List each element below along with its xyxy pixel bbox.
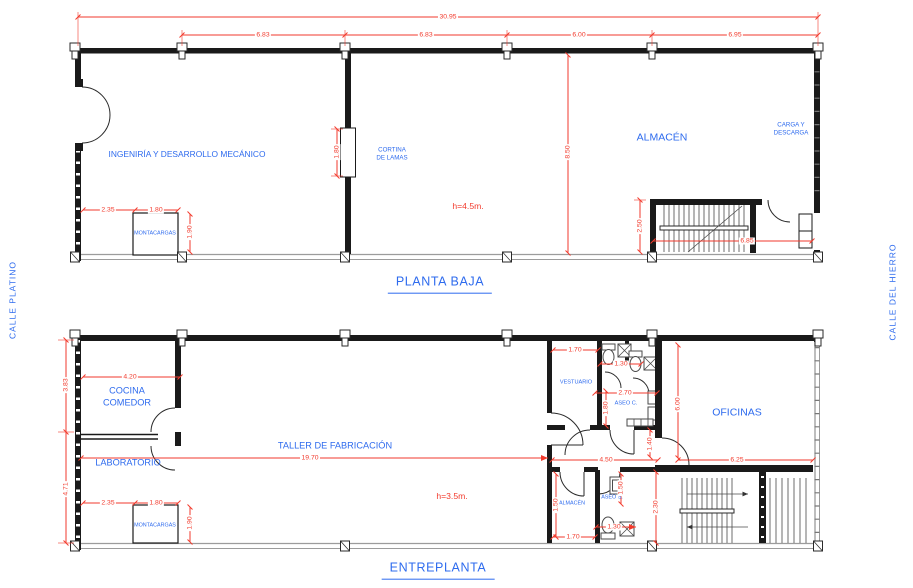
door-arc <box>82 87 110 115</box>
dimension-label: 6.95 <box>727 32 743 39</box>
street-label-calle-del-hierro: CALLE DEL HIERRO <box>888 244 899 341</box>
planta-baja-drawing <box>70 12 823 262</box>
dimension-label: 2.70 <box>617 390 633 397</box>
dimension-label: 1.80 <box>148 500 164 507</box>
dimension-label: 3.83 <box>63 377 70 393</box>
dimension-label: 1.80 <box>603 400 610 416</box>
dimension-label: 1.70 <box>567 347 583 354</box>
stairs-entreplanta <box>680 472 806 543</box>
dimension-label: 1.50 <box>618 480 625 496</box>
dimension-label: 2.35 <box>100 207 116 214</box>
dimension-label: 4.20 <box>122 374 138 381</box>
entreplanta-drawing <box>58 330 823 551</box>
floorplan-canvas: CALLE PLATINO CALLE DEL HIERRO PLANTA BA… <box>0 0 913 588</box>
dimension-label: 4.71 <box>63 481 70 497</box>
dimension-label: 19.70 <box>300 455 320 462</box>
room-label-ingenieria: INGENIRÍA Y DESARROLLO MECÁNICO <box>109 149 266 160</box>
room-label-cocina-comedor: COCINACOMEDOR <box>103 386 151 409</box>
stairs-planta-baja <box>650 199 762 253</box>
dimension-label: 6.83 <box>418 32 434 39</box>
room-label-taller: TALLER DE FABRICACIÓN <box>278 440 392 452</box>
door-leaf <box>799 231 812 248</box>
height-note-ep: h=3.5m. <box>436 491 467 501</box>
dimension-label: 2.30 <box>653 499 660 515</box>
dimension-label: 1.50 <box>553 497 560 513</box>
dimension-label: 1.90 <box>187 224 194 240</box>
room-label-almacen-pb: ALMACÉN <box>637 131 688 144</box>
dimension-label: 1.40 <box>647 436 654 452</box>
room-label-oficinas: OFICINAS <box>712 406 762 419</box>
dimension-label: 1.30 <box>613 361 629 368</box>
door-arc <box>768 200 790 222</box>
door-arc <box>662 438 689 465</box>
dimension-label: 1.30 <box>606 524 622 531</box>
dimension-label: 8.50 <box>565 144 572 160</box>
room-label-montacargas-pb: MONTACARGAS <box>134 231 176 238</box>
dimension-label: 6.25 <box>729 457 745 464</box>
room-label-vestuario: VESTUARIO <box>560 380 592 387</box>
services-block <box>547 341 657 543</box>
dimension-label: 2.35 <box>100 500 116 507</box>
dimension-label: 1.80 <box>334 144 341 160</box>
street-label-calle-platino: CALLE PLATINO <box>8 261 19 339</box>
room-label-laboratorio: LABORATORIO <box>95 457 161 469</box>
cortina-door <box>341 128 356 177</box>
dimension-label: 6.83 <box>255 32 271 39</box>
planta-baja-title: PLANTA BAJA <box>388 275 492 294</box>
dimension-label: 1.80 <box>148 207 164 214</box>
dimension-label: 30.95 <box>438 14 458 21</box>
entreplanta-title: ENTREPLANTA <box>382 561 495 580</box>
dimension-label: 1.70 <box>565 534 581 541</box>
door-arc <box>151 408 175 432</box>
room-label-montacargas-ep: MONTACARGAS <box>134 523 176 530</box>
dimension-label: 2.50 <box>637 218 644 234</box>
dimension-label: 4.50 <box>598 457 614 464</box>
dimension-label: 1.90 <box>187 515 194 531</box>
room-label-carga-descarga: CARGA YDESCARGA <box>774 121 809 137</box>
room-label-aseo-c: ASEO C. <box>615 401 638 408</box>
door-leaf <box>799 214 812 231</box>
dimension-label: 6.00 <box>675 396 682 412</box>
room-label-cortina-de-lamas: CORTINADE LAMAS <box>376 146 407 162</box>
dimension-label: 6.85 <box>739 238 755 245</box>
height-note-pb: h=4.5m. <box>452 201 483 211</box>
dimension-label: 6.00 <box>571 32 587 39</box>
room-label-almacen-ep: ALMACÉN <box>559 501 585 508</box>
door-arc <box>82 115 110 143</box>
